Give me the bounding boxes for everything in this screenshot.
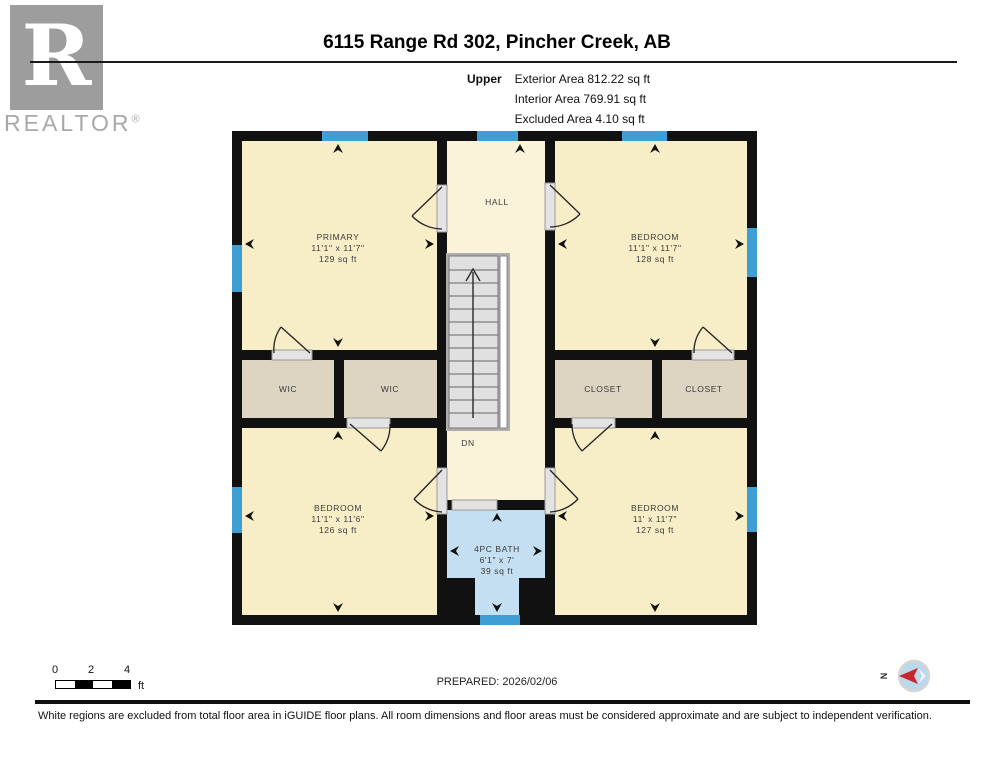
compass-north-label: N: [879, 673, 889, 680]
compass: N: [868, 652, 938, 700]
stairs: [446, 253, 510, 431]
window-right-bedroom-bottom: [747, 487, 757, 532]
hall-name: HALL: [485, 197, 509, 207]
window-top-bedroom: [622, 131, 667, 141]
window-top-primary: [322, 131, 368, 141]
closet-right-name: CLOSET: [685, 384, 723, 394]
door-threshold-bedroom-tr: [545, 183, 555, 230]
window-left-primary: [232, 245, 242, 292]
bedroom-bl-area: 126 sq ft: [319, 525, 357, 535]
bath-area: 39 sq ft: [481, 566, 514, 576]
window-bottom-bath: [480, 615, 520, 625]
door-threshold-primary: [437, 185, 447, 232]
window-top-hall: [477, 131, 518, 141]
bath-dims: 6'1" x 7': [480, 555, 515, 565]
realtor-logo-letter: R: [22, 14, 92, 98]
footer-divider-line: [35, 700, 970, 704]
bedroom-br-area: 127 sq ft: [636, 525, 674, 535]
scale-tick-4: 4: [124, 664, 130, 676]
prepared-date: PREPARED: 2026/02/06: [0, 676, 994, 688]
bedroom-br-dims: 11' x 11'7": [633, 514, 677, 524]
bedroom-tr-area: 128 sq ft: [636, 254, 674, 264]
door-threshold-closet-right: [692, 350, 734, 360]
realtor-logo: R: [10, 5, 103, 110]
stairs-railing: [500, 256, 507, 428]
primary-dims: 11'1" x 11'7": [311, 243, 364, 253]
stairs-dn-label: DN: [461, 438, 474, 448]
door-threshold-bedroom-br: [545, 468, 555, 514]
wic-left-name: WIC: [279, 384, 297, 394]
floor-plan: PRIMARY 11'1" x 11'7" 129 sq ft BEDROOM …: [0, 0, 994, 768]
bath-wall-block-left: [447, 578, 475, 615]
floorplan-page: R REALTOR® 6115 Range Rd 302, Pincher Cr…: [0, 0, 994, 768]
bedroom-br-name: BEDROOM: [631, 503, 679, 513]
realtor-wordmark: REALTOR®: [4, 110, 143, 137]
window-right-bedroom-top: [747, 228, 757, 277]
primary-name: PRIMARY: [317, 232, 360, 242]
window-left-bedroom: [232, 487, 242, 533]
bedroom-tr-name: BEDROOM: [631, 232, 679, 242]
door-threshold-bedroom-bl: [437, 468, 447, 514]
bedroom-tr-dims: 11'1" x 11'7": [628, 243, 681, 253]
bath-name: 4PC BATH: [474, 544, 520, 554]
realtor-wordmark-text: REALTOR: [4, 110, 132, 136]
door-threshold-bath: [452, 500, 497, 510]
registered-symbol: ®: [132, 113, 143, 125]
bath-wall-block-right: [519, 578, 545, 615]
scale-tick-0: 0: [52, 664, 58, 676]
header-divider-line: [30, 61, 957, 63]
bedroom-bl-dims: 11'1" x 11'6": [311, 514, 364, 524]
disclaimer-text: White regions are excluded from total fl…: [38, 710, 978, 722]
scale-tick-2: 2: [88, 664, 94, 676]
primary-area: 129 sq ft: [319, 254, 357, 264]
wic-right-name: WIC: [381, 384, 399, 394]
closet-left-name: CLOSET: [584, 384, 622, 394]
bedroom-bl-name: BEDROOM: [314, 503, 362, 513]
door-threshold-wic-left: [272, 350, 312, 360]
